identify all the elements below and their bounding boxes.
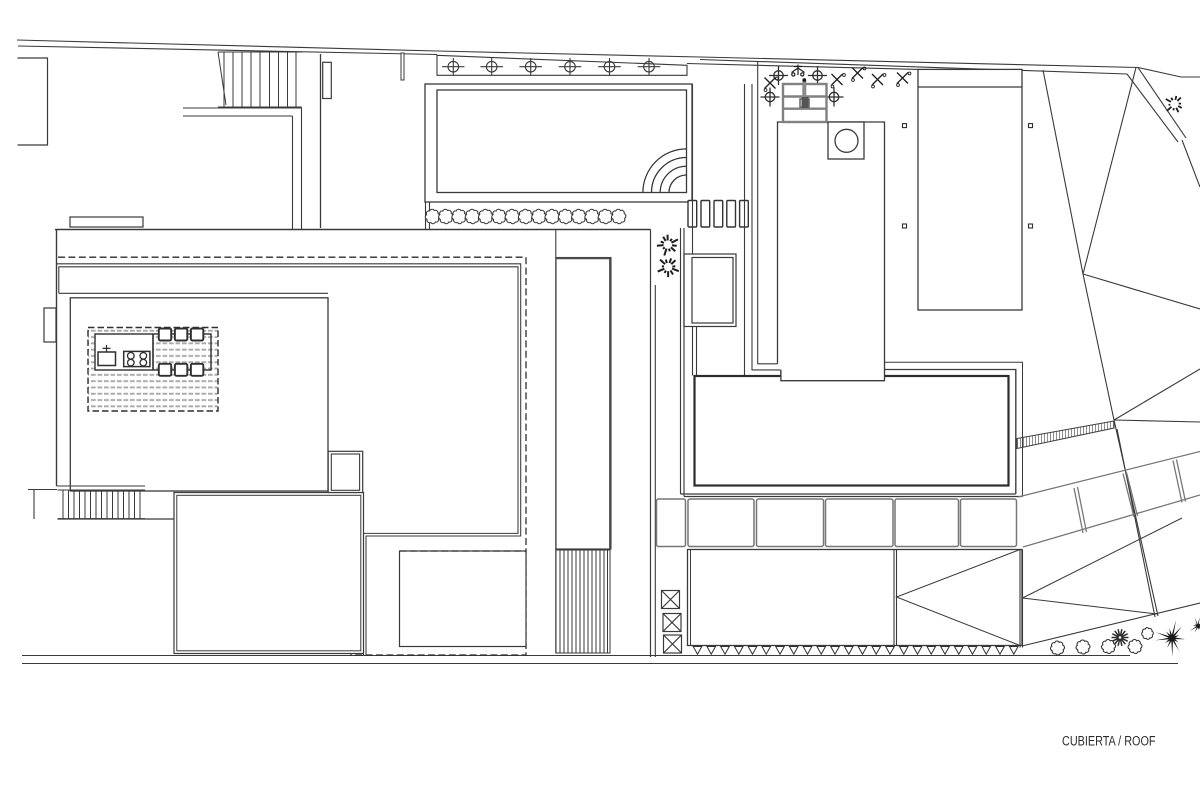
svg-text:CUBIERTA / ROOF: CUBIERTA / ROOF xyxy=(1062,734,1156,750)
